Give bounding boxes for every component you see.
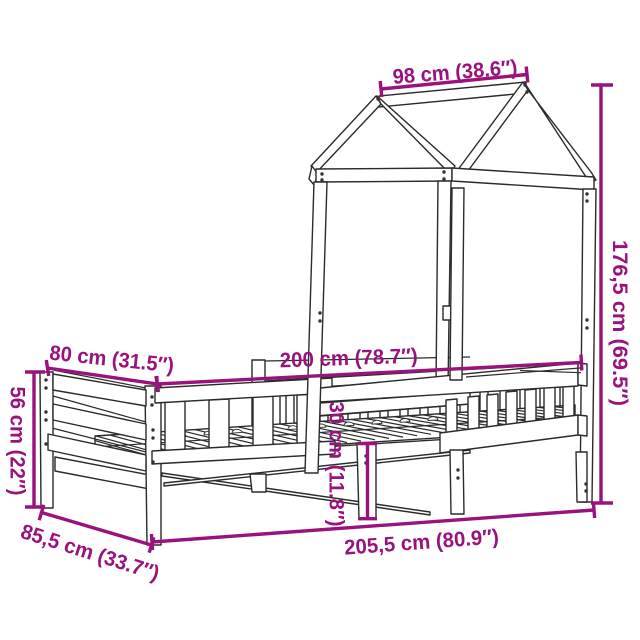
svg-text:56 cm (22″): 56 cm (22″) (6, 387, 29, 496)
svg-text:30 cm (11.8″): 30 cm (11.8″) (325, 402, 348, 527)
svg-text:176,5 cm (69.5″): 176,5 cm (69.5″) (608, 240, 631, 406)
svg-text:200 cm (78.7″): 200 cm (78.7″) (279, 345, 418, 373)
